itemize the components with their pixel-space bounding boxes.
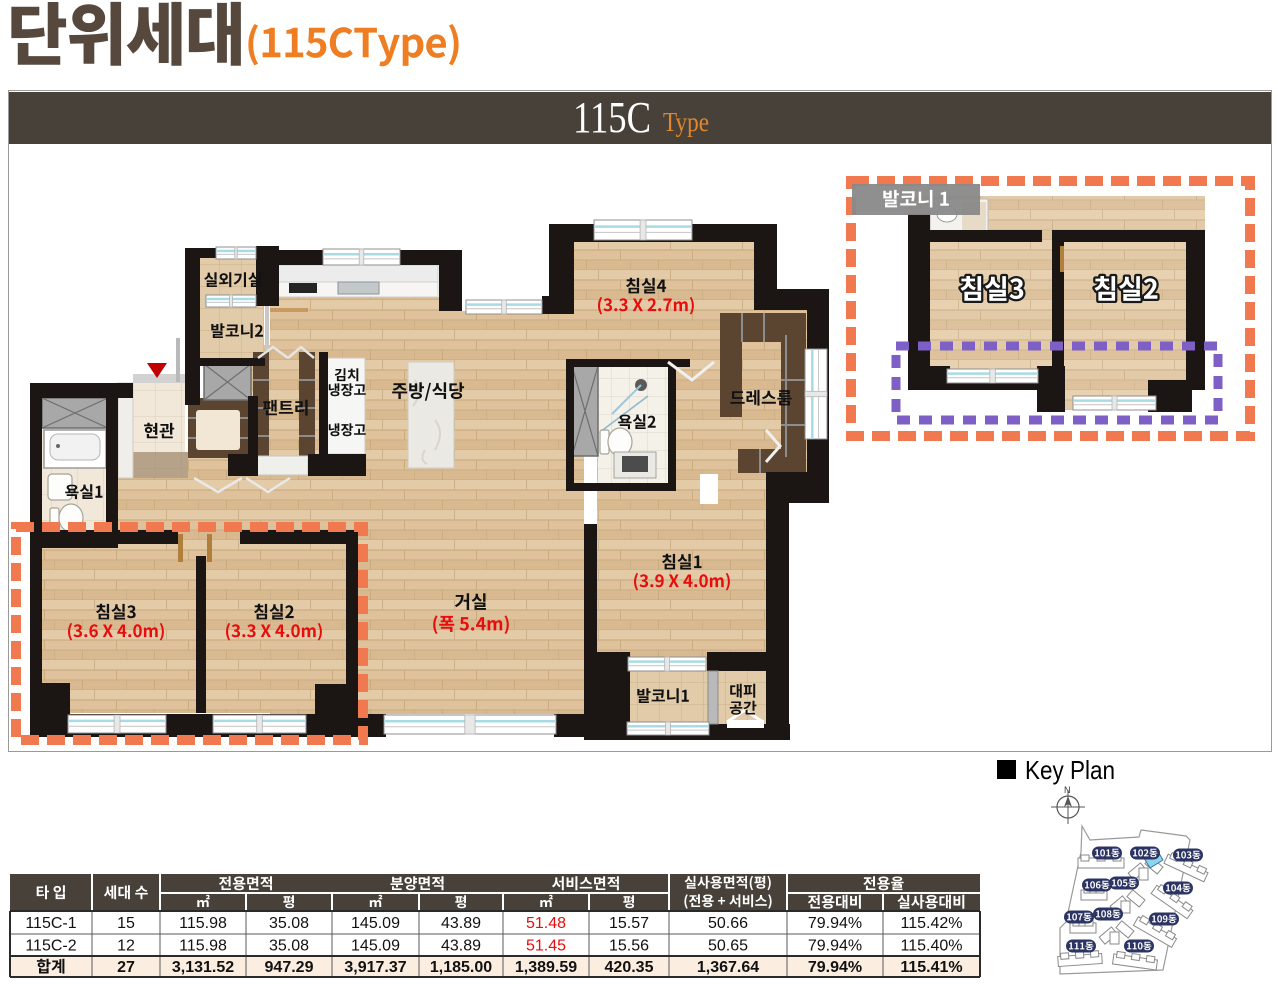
svg-text:43.89: 43.89: [441, 938, 481, 955]
svg-text:115C: 115C: [573, 93, 651, 142]
svg-text:43.89: 43.89: [441, 915, 481, 932]
svg-text:1,185.00: 1,185.00: [430, 959, 492, 976]
svg-text:145.09: 145.09: [351, 915, 400, 932]
svg-text:27: 27: [117, 959, 135, 976]
svg-text:15.56: 15.56: [609, 938, 649, 955]
svg-text:115.41%: 115.41%: [900, 959, 962, 976]
svg-text:115.98: 115.98: [179, 938, 227, 955]
svg-text:145.09: 145.09: [351, 938, 400, 955]
svg-text:N: N: [1064, 785, 1071, 795]
svg-text:3,131.52: 3,131.52: [172, 959, 234, 976]
svg-text:51.48: 51.48: [526, 915, 566, 932]
svg-text:115.42%: 115.42%: [901, 915, 963, 932]
svg-text:420.35: 420.35: [605, 959, 654, 976]
svg-text:12: 12: [117, 938, 135, 955]
svg-text:35.08: 35.08: [269, 938, 309, 955]
svg-text:79.94%: 79.94%: [808, 959, 862, 976]
svg-text:115.40%: 115.40%: [901, 938, 963, 955]
svg-text:35.08: 35.08: [269, 915, 309, 932]
svg-text:Key Plan: Key Plan: [1025, 755, 1115, 785]
svg-text:15: 15: [117, 915, 135, 932]
svg-text:15.57: 15.57: [609, 915, 649, 932]
svg-text:115C-2: 115C-2: [25, 938, 76, 955]
svg-text:115C-1: 115C-1: [25, 915, 76, 932]
svg-text:79.94%: 79.94%: [808, 915, 862, 932]
svg-text:50.65: 50.65: [708, 938, 748, 955]
svg-text:51.45: 51.45: [526, 938, 566, 955]
svg-text:Type: Type: [663, 107, 709, 137]
svg-text:1,389.59: 1,389.59: [515, 959, 577, 976]
svg-text:1,367.64: 1,367.64: [697, 959, 759, 976]
svg-text:947.29: 947.29: [265, 959, 314, 976]
svg-text:50.66: 50.66: [708, 915, 748, 932]
svg-text:115.98: 115.98: [179, 915, 227, 932]
svg-text:3,917.37: 3,917.37: [344, 959, 406, 976]
svg-text:79.94%: 79.94%: [808, 938, 862, 955]
